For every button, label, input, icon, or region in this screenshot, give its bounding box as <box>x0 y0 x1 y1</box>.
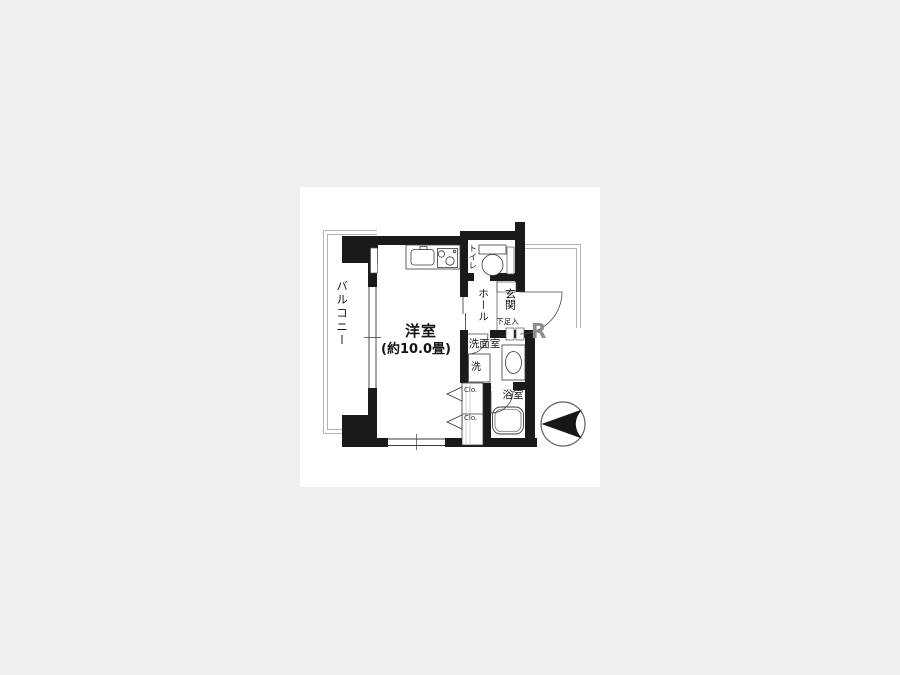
floorplan-panel: バルコニー 洋室 (約10.0畳) トイレ ホール 玄関 下足入 洗面室 洗 浴… <box>300 187 600 487</box>
washroom-label: 洗面室 <box>461 339 508 350</box>
north-arrow-icon <box>541 402 585 446</box>
bathroom-label: 浴室 <box>495 390 531 401</box>
balcony-label: バルコニー <box>336 280 348 348</box>
shoe-storage-label: 下足入 <box>492 318 523 326</box>
corridor-outline <box>525 245 581 329</box>
page-background: { "canvas": { "background": "#efefef", "… <box>0 0 900 675</box>
toilet-label: トイレ <box>467 244 476 270</box>
closet-lower-label: Clo. <box>464 415 477 422</box>
vanity-sink-icon <box>502 345 525 380</box>
closet-upper-label: Clo. <box>464 387 477 394</box>
main-room-size: (約10.0畳) <box>362 343 470 357</box>
south-window <box>388 434 445 450</box>
main-room-label: 洋室 <box>376 324 466 340</box>
hall-label: ホール <box>477 288 488 323</box>
toilet-icon <box>479 245 506 276</box>
entrance-label: 玄関 <box>504 288 516 310</box>
bathtub-icon <box>493 407 524 434</box>
kitchen-counter-icon <box>406 245 460 269</box>
watermark-fragment: R <box>531 321 546 342</box>
washer-space-label: 洗 <box>471 363 481 374</box>
